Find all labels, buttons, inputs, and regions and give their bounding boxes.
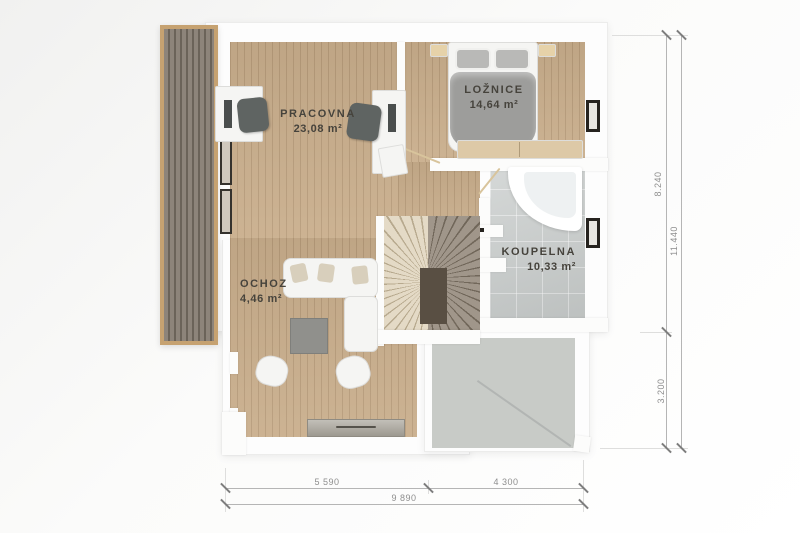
sideboard [307, 419, 405, 437]
label-ochoz: OCHOZ 4,46 m² [240, 278, 320, 307]
wall-notch-left-1 [230, 352, 238, 374]
balcony-deck [160, 25, 218, 345]
label-loznice: LOŽNICE 14,64 m² [444, 84, 544, 113]
dim-line-right-outer [681, 35, 682, 448]
dim-value-bottom-total: 9 890 [391, 493, 416, 503]
monitor-right [388, 104, 396, 132]
room-name: LOŽNICE [444, 84, 544, 98]
room-name: OCHOZ [240, 278, 320, 292]
dim-line-bottom-lower [225, 504, 583, 505]
room-area: 14,64 m² [444, 99, 544, 113]
dim-value-right-bottom: 3.200 [656, 378, 666, 403]
dim-value-right-top: 8.240 [653, 171, 663, 196]
bed-pillow-right [494, 48, 530, 70]
window-right-koupelna [586, 218, 600, 248]
bed-pillow-left [455, 48, 491, 70]
room-area: 4,46 m² [240, 293, 320, 307]
room-area: 23,08 m² [268, 123, 368, 137]
dim-value-bottom-right: 4 300 [493, 477, 518, 487]
sofa-cushion-3 [351, 265, 369, 285]
office-chair-left [236, 97, 269, 134]
dim-line-bottom-upper [225, 488, 583, 489]
roof-chimney [573, 435, 591, 453]
balcony-door-glazing-upper [220, 140, 232, 185]
monitor-left [224, 100, 232, 128]
dim-value-bottom-left: 5 590 [314, 477, 339, 487]
dim-ext-right-top [612, 35, 688, 36]
nightstand-right [538, 44, 556, 57]
stair-railing-bottom [376, 330, 480, 344]
balcony-door-glazing-lower [220, 189, 232, 234]
nightstand-left [430, 44, 448, 57]
coffee-table [290, 318, 328, 354]
printer-stand [378, 144, 409, 178]
room-name: PRACOVNA [268, 108, 368, 122]
window-right-loznice [586, 100, 600, 132]
dim-line-right-inner [666, 35, 667, 448]
lower-roof-surface [432, 338, 575, 448]
wall-corner-bottom-left [222, 412, 246, 455]
stairs-void [420, 268, 447, 324]
sofa-chaise [344, 296, 378, 352]
dresser [457, 140, 583, 159]
dresser-divider [519, 142, 520, 157]
room-area: 10,33 m² [480, 261, 576, 275]
sideboard-handle [336, 426, 376, 428]
label-pracovna: PRACOVNA 23,08 m² [268, 108, 368, 137]
room-name: KOUPELNA [480, 246, 576, 260]
dim-value-right-total: 11.440 [669, 226, 679, 256]
label-koupelna: KOUPELNA 10,33 m² [480, 246, 576, 275]
dim-ext-right-bottom [600, 448, 688, 449]
floor-plan-canvas: PRACOVNA 23,08 m² LOŽNICE 14,64 m² KOUPE… [0, 0, 800, 533]
